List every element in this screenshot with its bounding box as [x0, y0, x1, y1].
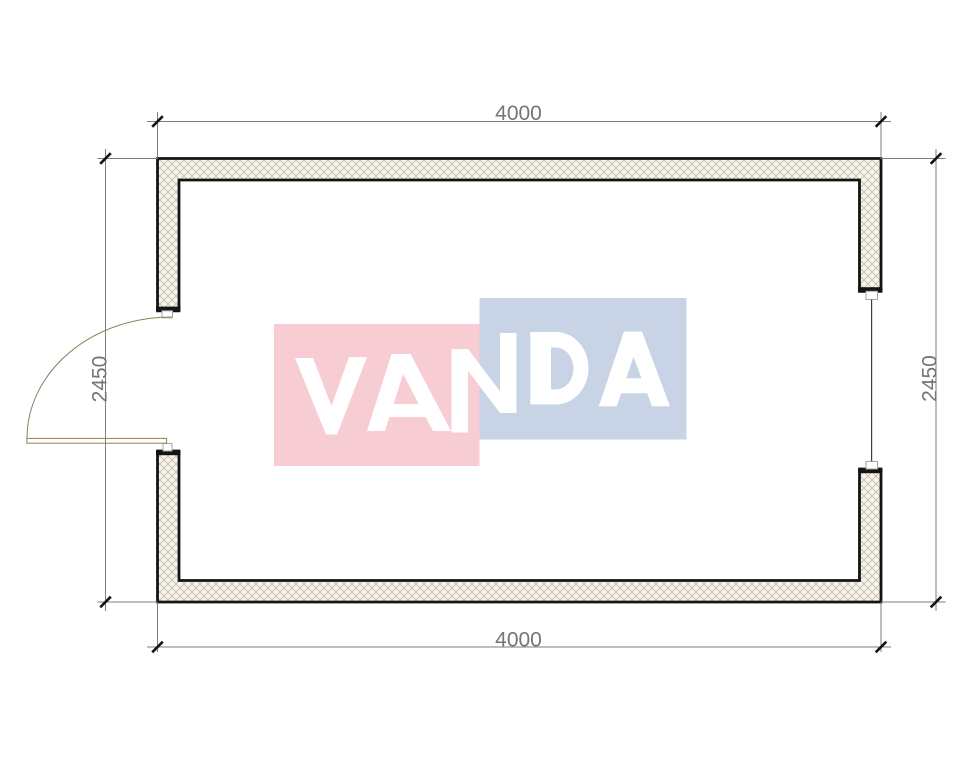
svg-text:4000: 4000 [495, 629, 542, 652]
svg-text:4000: 4000 [495, 102, 542, 125]
svg-text:2450: 2450 [88, 356, 111, 403]
svg-text:2450: 2450 [918, 355, 941, 402]
